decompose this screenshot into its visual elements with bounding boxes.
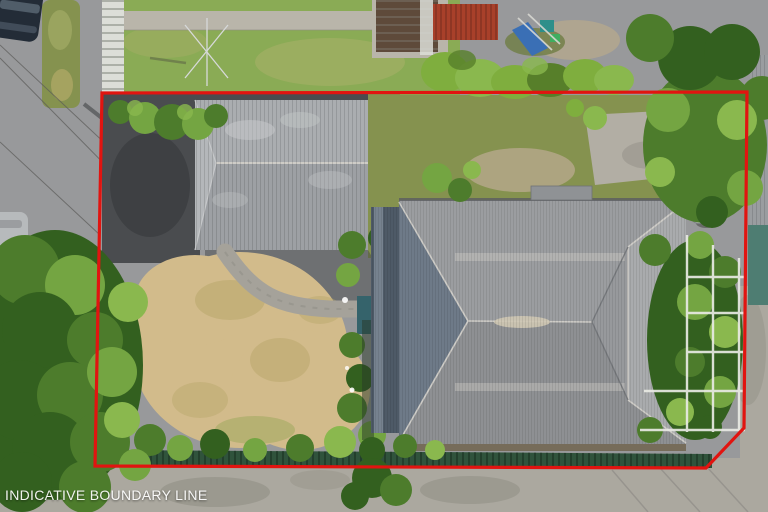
aerial-scene: [0, 0, 768, 512]
neighbor-shed-red-roof: [433, 4, 498, 40]
dirt-patch: [465, 148, 575, 192]
footpath: [118, 11, 380, 30]
veranda-roof: [371, 207, 399, 433]
chimney: [531, 186, 592, 200]
white-fence: [102, 0, 124, 93]
aerial-photo: INDICATIVE BOUNDARY LINE: [0, 0, 768, 512]
